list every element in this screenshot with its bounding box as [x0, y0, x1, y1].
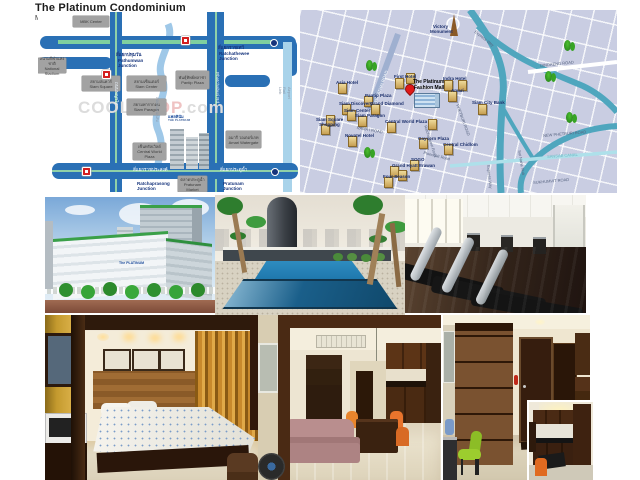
transit-station-icon: [271, 168, 279, 176]
door-handle: [523, 385, 526, 388]
map-text: ถนนพญาไท: [114, 82, 119, 105]
place-english: Siam Center: [135, 84, 157, 89]
map-text: สี่แยกราชเทวี: [218, 45, 244, 50]
map-label: Indra Hotel: [443, 76, 467, 81]
map-place-box: พันธุ์ทิพย์พลาซ่า Pantip Plaza: [176, 71, 209, 89]
wall-shelf: [529, 422, 536, 452]
listing-flyer: The Platinum Condominium Map/Location Rd…: [0, 0, 640, 480]
landmark-icon: [545, 71, 552, 82]
photo-building-exterior: The PLATINUM: [45, 197, 215, 313]
tower-sketch: [186, 137, 198, 169]
landmark-icon: [566, 112, 573, 123]
transit-station-icon: [181, 36, 190, 45]
map-label: SOGO: [411, 157, 425, 162]
tower-sketch: [199, 133, 209, 169]
armchair: [227, 453, 258, 480]
upper-cabinets: [533, 410, 573, 424]
trees-row: [59, 283, 73, 297]
landmark-icon: [366, 60, 373, 71]
map-text: สี่แยกปทุมวัน: [116, 52, 141, 57]
landmark-icon: [364, 147, 371, 158]
entry-door: [356, 371, 373, 421]
photo-swimming-pool: [215, 195, 405, 315]
upper-cabinet: [575, 333, 590, 375]
fire-extinguisher: [514, 375, 518, 385]
left-building-edge: [45, 221, 53, 289]
sofa-seat: [284, 437, 360, 463]
microwave-door: [49, 418, 71, 437]
gray-cabinet: [443, 437, 457, 480]
landmark-icon: [395, 78, 404, 89]
display-cabinet: [306, 355, 342, 423]
map-place-box: สนามกีฬาแห่งชาติ National Stadium: [38, 58, 66, 73]
map-text: Airport Rail Link: [277, 87, 291, 99]
map-label: Four Season: [383, 174, 410, 179]
photo-gym: [405, 195, 586, 313]
transit-station-icon: [82, 167, 91, 176]
picture-frame: [103, 349, 131, 371]
tower-sketch: [170, 129, 184, 169]
map-place-box: อมารี วอเตอร์เกท Amari Watergate: [226, 131, 261, 148]
map-text: Pratunam Junction: [223, 181, 244, 191]
map-place-box: MBK Center: [73, 16, 109, 27]
map-text: Pathumwan Junction: [118, 58, 143, 68]
electric-fan: [258, 453, 285, 480]
place-english: Central World Plaza: [133, 149, 166, 159]
arch-left-pillar: [71, 315, 85, 480]
road-strip: [45, 300, 215, 313]
wardrobe: [455, 323, 513, 465]
picture-frame: [159, 349, 185, 371]
transit-station-icon: [102, 70, 111, 79]
transit-station-icon: [270, 39, 278, 47]
dining-table: [356, 419, 398, 453]
backsplash: [533, 424, 573, 438]
place-english: Amari Watergate: [229, 140, 259, 145]
arch-right-pillar: [250, 315, 258, 430]
road-east-stub: [225, 75, 270, 87]
bts-line: [58, 40, 276, 44]
landmark-icon: [478, 104, 487, 115]
photo-living-room: [258, 315, 441, 480]
orange-chair: [396, 427, 409, 446]
map-label: Asia Hotel: [336, 80, 358, 85]
pendant-light: [376, 328, 377, 364]
map-text: Ratchathewee Junction: [219, 51, 249, 61]
place-english: MBK Center: [80, 19, 102, 24]
place-english: Pantip Plaza: [181, 80, 203, 85]
facade-logo: The PLATINUM: [119, 261, 144, 265]
planter-bushes: [333, 253, 343, 261]
ac-vent: [316, 335, 366, 348]
floor-gloss: [405, 247, 586, 313]
map-label: Fashion Mall: [414, 86, 444, 92]
arch-top-beam: [71, 315, 258, 330]
map-label: Monument: [430, 29, 453, 34]
area-map: VictoryMonumentExpress WayDINDAENG ROADP…: [300, 10, 617, 193]
place-thai: สนามกีฬาแห่งชาติ: [38, 56, 66, 66]
map-label: Grand Diamond: [370, 101, 404, 106]
map-text: Ratchaprasong Junction: [137, 181, 170, 191]
map-label: Gaysorn Plaza: [418, 136, 449, 141]
platinum-logo-english: THE PLATINUM: [168, 119, 210, 122]
map-label: Novotel Hotel: [345, 133, 374, 138]
map-place-box: เซ็นทรัลเวิลด์ Central World Plaza: [133, 143, 166, 160]
map-label: Siam Paragon: [355, 113, 385, 118]
wardrobe-cornice: [455, 323, 513, 331]
map-place-box: สยามพารากอน Siam Paragon: [127, 99, 166, 115]
photo-kitchen-inset: [527, 400, 593, 480]
map-place-box: ตลาดประตูน้ำ Pratunam Market: [178, 176, 207, 192]
window-frame: [258, 343, 279, 393]
map-label: Grand Hyatt Erawan: [392, 163, 435, 168]
pool-lower: [215, 279, 405, 309]
map-label: Siam Discovery: [339, 101, 373, 106]
map-text: คลองแสนแสบ: [154, 97, 159, 122]
map-text: Phetchaburi Rd.: [215, 72, 220, 104]
water-jug: [445, 419, 454, 435]
landmark-icon: [414, 93, 440, 108]
schematic-location-map: COOLPROP.com แพลทินัม THE PLATINUM MBK C…: [38, 12, 300, 192]
place-english: National Stadium: [38, 66, 66, 76]
cloud: [65, 205, 95, 215]
landmark-icon: [564, 40, 571, 51]
palm-fronds-left: [217, 197, 243, 215]
map-text: สี่แยกราชประสงค์: [133, 167, 168, 172]
watermark-cool: COOL: [78, 98, 131, 117]
map-label: Amari: [451, 88, 464, 93]
map-label: Siam City Bank: [472, 100, 505, 105]
place-english: Siam Square: [89, 84, 112, 89]
platinum-building-illustration: แพลทินัม THE PLATINUM: [168, 115, 210, 173]
platinum-logo: แพลทินัม THE PLATINUM: [168, 115, 210, 123]
map-label: Central World Plaza: [385, 119, 427, 124]
orange-chair: [535, 458, 547, 476]
ceiling-spotlights: [97, 333, 109, 341]
map-label: Central Chidlom: [443, 142, 478, 147]
chair-legs: [461, 459, 479, 475]
arch-top-beam: [278, 315, 441, 328]
map-text: สี่แยกประตูน้ำ: [220, 167, 247, 172]
gray-frame: [443, 331, 455, 383]
map-label: Pantip Plaza: [365, 93, 392, 98]
map-place-box: สยามเซ็นเตอร์ Siam Center: [127, 76, 166, 91]
picture-frame: [132, 349, 160, 371]
map-label: Shopping: [319, 122, 340, 127]
spotlight: [535, 319, 545, 325]
photo-bedroom: [45, 315, 258, 480]
place-english: Pratunam Market: [178, 182, 207, 192]
